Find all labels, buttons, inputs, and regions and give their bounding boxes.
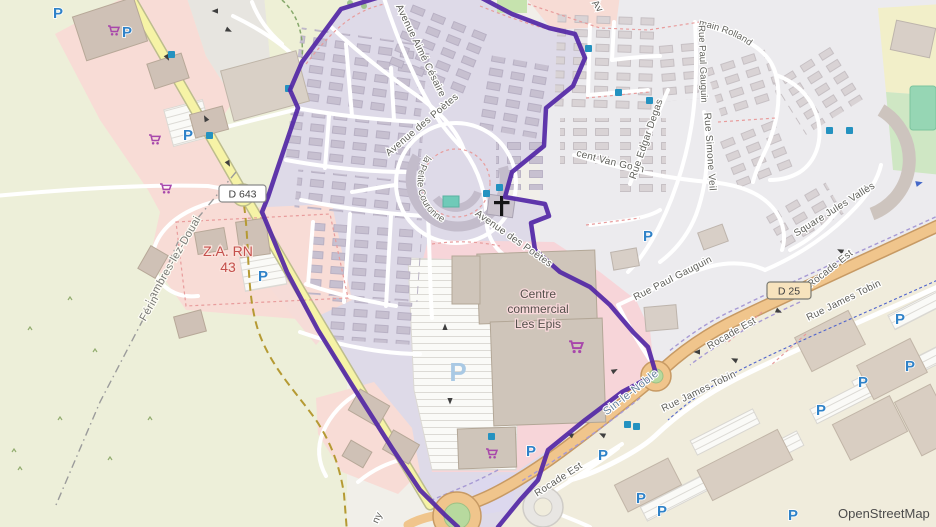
mall-label: Les Epis — [515, 317, 561, 331]
parking-icon: P — [53, 5, 63, 22]
playground-area — [443, 196, 459, 207]
parking-icon: P — [895, 311, 905, 328]
industrial-zone-label: 43 — [220, 259, 236, 275]
road-shield-d643: D 643 — [219, 185, 266, 202]
parking-icon: P — [598, 447, 608, 464]
parking-icon: P — [258, 268, 268, 285]
parking-icon: P — [122, 24, 132, 41]
road-shield-d25: D 25 — [767, 282, 811, 299]
mall-label: Centre — [520, 287, 556, 301]
map-canvas: P P P P P P P P P P P P P P P Avenue Aim… — [0, 0, 936, 527]
parking-icon: P — [905, 358, 915, 375]
parking-lot-icon-large: P — [449, 357, 466, 387]
osm-attribution-link[interactable]: OpenStreetMap — [838, 506, 930, 521]
parking-icon: P — [816, 402, 826, 419]
svg-text:D 25: D 25 — [778, 286, 800, 298]
parking-icon: P — [657, 503, 667, 520]
industrial-zone-label: Z.A. RN — [203, 243, 253, 259]
parking-icon: P — [183, 127, 193, 144]
svg-text:D 643: D 643 — [228, 189, 256, 201]
parking-icon: P — [526, 443, 536, 460]
parking-icon: P — [788, 507, 798, 524]
parking-icon: P — [643, 228, 653, 245]
map-viewport[interactable]: P P P P P P P P P P P P P P P Avenue Aim… — [0, 0, 936, 527]
parking-icon: P — [858, 374, 868, 391]
mall-label: commercial — [507, 302, 568, 316]
parking-icon: P — [636, 490, 646, 507]
